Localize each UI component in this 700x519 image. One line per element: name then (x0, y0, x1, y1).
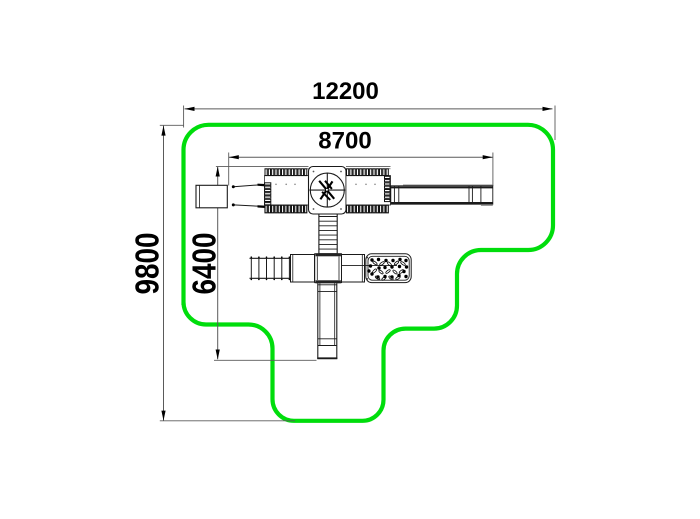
svg-text:6400: 6400 (186, 233, 223, 295)
svg-text:8700: 8700 (318, 128, 371, 155)
svg-text:9800: 9800 (129, 233, 166, 295)
svg-text:12200: 12200 (312, 78, 379, 105)
